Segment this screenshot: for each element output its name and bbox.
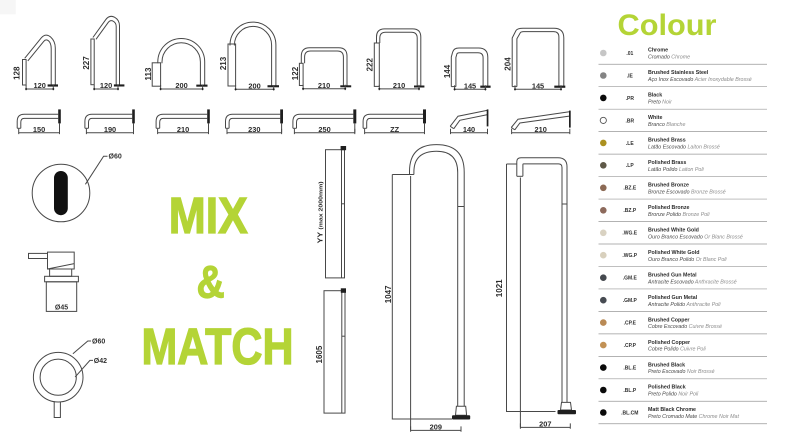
svg-text:.PR: .PR	[626, 96, 635, 102]
svg-text:250: 250	[318, 125, 330, 134]
svg-text:190: 190	[104, 125, 116, 134]
svg-text:MIX: MIX	[169, 187, 248, 244]
svg-text:Polished Gun Metal: Polished Gun Metal	[648, 295, 698, 301]
svg-text:Preto Polido Noir Poli: Preto Polido Noir Poli	[648, 392, 699, 398]
svg-text:ZZ: ZZ	[390, 125, 400, 134]
svg-text:200: 200	[175, 81, 187, 90]
svg-text:.WG.E: .WG.E	[622, 231, 637, 237]
svg-text:140: 140	[463, 125, 475, 134]
svg-text:Ø42: Ø42	[94, 358, 107, 365]
svg-text:222: 222	[366, 57, 375, 71]
svg-text:1021: 1021	[495, 279, 504, 297]
svg-text:Polished Brass: Polished Brass	[648, 160, 686, 166]
svg-text:Brushed Gun Metal: Brushed Gun Metal	[648, 272, 697, 278]
svg-text:Cobre Escovado Cuivre Brossé: Cobre Escovado Cuivre Brossé	[648, 324, 722, 330]
svg-text:210: 210	[318, 81, 330, 90]
svg-text:Black: Black	[648, 93, 662, 99]
svg-text:.IE: .IE	[627, 73, 634, 79]
svg-text:1605: 1605	[315, 345, 324, 363]
svg-text:204: 204	[503, 57, 512, 71]
svg-text:&: &	[197, 256, 225, 307]
svg-text:227: 227	[82, 56, 91, 70]
svg-text:209: 209	[430, 423, 442, 432]
svg-text:Cromado Chrome: Cromado Chrome	[648, 55, 690, 61]
svg-text:Ø60: Ø60	[92, 339, 105, 346]
svg-text:213: 213	[219, 56, 228, 70]
svg-text:Polished Bronze: Polished Bronze	[648, 205, 690, 211]
svg-text:.GM.E: .GM.E	[623, 276, 638, 282]
svg-text:150: 150	[33, 125, 45, 134]
svg-text:Preto Escovado Noir Brossé: Preto Escovado Noir Brossé	[648, 369, 715, 375]
svg-text:.BL.P: .BL.P	[623, 388, 636, 394]
svg-text:122: 122	[291, 66, 300, 80]
svg-text:Chrome: Chrome	[648, 48, 668, 54]
svg-text:.BL.CM: .BL.CM	[621, 410, 638, 416]
svg-text:Bronze Escovado Bronze Brossé: Bronze Escovado Bronze Brossé	[648, 189, 726, 195]
svg-text:207: 207	[539, 420, 551, 429]
svg-text:.LP: .LP	[626, 163, 634, 169]
svg-text:Brushed Stainless Steel: Brushed Stainless Steel	[648, 70, 709, 76]
svg-text:.WG.P: .WG.P	[622, 253, 637, 259]
svg-text:Brushed White Gold: Brushed White Gold	[648, 228, 699, 234]
svg-text:210: 210	[393, 81, 405, 90]
svg-text:.BL.E: .BL.E	[623, 366, 636, 372]
svg-text:Ouro Branco Polido Or Blanc Po: Ouro Branco Polido Or Blanc Poli	[648, 257, 727, 263]
svg-text:Colour: Colour	[618, 9, 718, 42]
svg-text:145: 145	[464, 81, 476, 90]
svg-text:Preto Cromado Mate Chrome Noir: Preto Cromado Mate Chrome Noir Mat	[648, 414, 739, 420]
svg-text:YY (max 2000mm): YY (max 2000mm)	[317, 181, 324, 243]
svg-text:Branco Blanche: Branco Blanche	[648, 122, 685, 128]
svg-text:Preto Noir: Preto Noir	[648, 100, 672, 106]
svg-text:Brushed Black: Brushed Black	[648, 362, 685, 368]
svg-text:.01: .01	[626, 51, 633, 57]
svg-text:.BZ.E: .BZ.E	[623, 186, 636, 192]
svg-text:128: 128	[12, 66, 21, 80]
svg-text:230: 230	[248, 125, 260, 134]
svg-text:.BR: .BR	[625, 118, 634, 124]
svg-text:120: 120	[100, 81, 112, 90]
svg-text:210: 210	[177, 125, 189, 134]
svg-text:113: 113	[144, 67, 153, 80]
svg-text:Latão Escovado Laiton Brossé: Latão Escovado Laiton Brossé	[648, 145, 720, 151]
svg-text:.GM.P: .GM.P	[623, 298, 638, 304]
svg-text:Polished White Gold: Polished White Gold	[648, 250, 700, 256]
svg-text:Antracite Escovado Anthracite: Antracite Escovado Anthracite Brossé	[647, 279, 737, 285]
svg-text:Bronze Polido Bronze Poli: Bronze Polido Bronze Poli	[648, 212, 710, 218]
svg-text:120: 120	[34, 81, 46, 90]
svg-text:Ø45: Ø45	[55, 304, 68, 311]
svg-text:145: 145	[532, 81, 544, 90]
svg-text:Antracite Polido Anthracite Po: Antracite Polido Anthracite Poli	[647, 302, 721, 308]
svg-text:Ouro Branco Escovado Or Blanc: Ouro Branco Escovado Or Blanc Brossé	[648, 234, 743, 240]
svg-text:1047: 1047	[384, 285, 393, 303]
svg-text:Polished Black: Polished Black	[648, 385, 686, 391]
svg-text:Ø60: Ø60	[109, 154, 122, 161]
svg-text:Latão Polido Laiton Poli: Latão Polido Laiton Poli	[648, 167, 704, 173]
svg-text:Aço Inox Escovado Acier Inoxyd: Aço Inox Escovado Acier Inoxydable Bross…	[647, 77, 752, 83]
svg-text:210: 210	[535, 125, 547, 134]
svg-text:Brushed Copper: Brushed Copper	[648, 317, 690, 323]
svg-text:Cobre Polido Cuivre Poli: Cobre Polido Cuivre Poli	[648, 347, 707, 353]
svg-text:White: White	[648, 115, 662, 121]
svg-text:144: 144	[443, 64, 452, 78]
svg-text:Matt Black Chrome: Matt Black Chrome	[648, 407, 696, 413]
svg-text:.BZ.P: .BZ.P	[623, 208, 636, 214]
svg-text:.LE: .LE	[626, 141, 634, 147]
svg-text:Polished Copper: Polished Copper	[648, 340, 690, 346]
svg-text:MATCH: MATCH	[142, 318, 294, 375]
svg-text:200: 200	[248, 81, 260, 90]
svg-text:Brushed Brass: Brushed Brass	[648, 138, 686, 144]
svg-text:Brushed Bronze: Brushed Bronze	[648, 183, 689, 189]
svg-text:.CP.E: .CP.E	[624, 321, 637, 327]
svg-text:.CP.P: .CP.P	[624, 343, 637, 349]
